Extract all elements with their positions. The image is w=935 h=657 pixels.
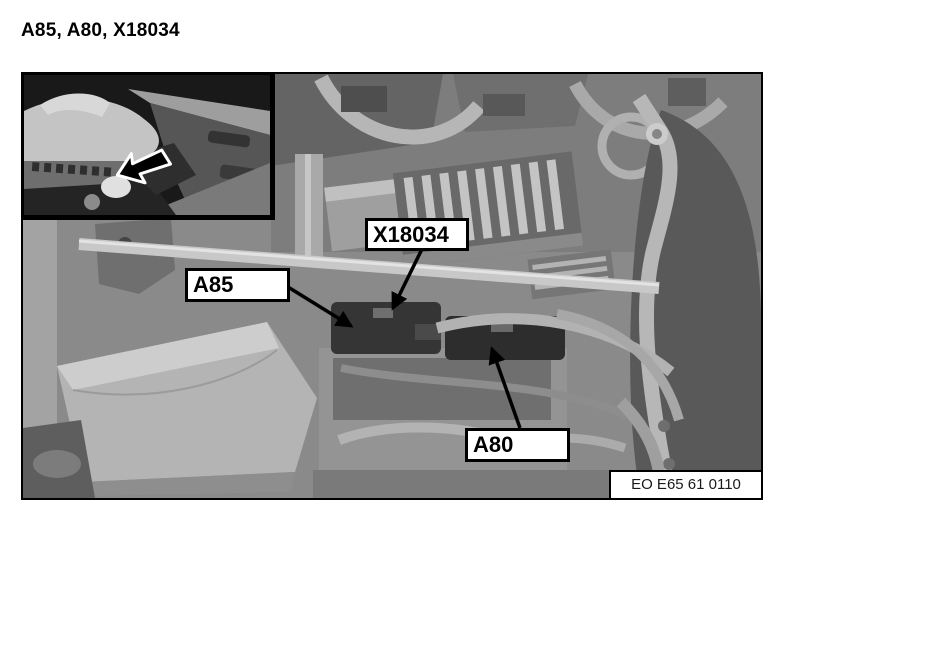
callout-label-x18034: X18034 — [365, 218, 469, 251]
callout-arrow-icon — [492, 349, 520, 428]
location-inset — [21, 72, 275, 220]
inset-photo — [24, 75, 270, 215]
callout-arrow-icon — [393, 249, 422, 308]
page-title: A85, A80, X18034 — [21, 20, 180, 42]
image-code-label: EO E65 61 0110 — [609, 470, 761, 498]
callout-label-a80: A80 — [465, 428, 570, 462]
callout-arrow-icon — [288, 287, 351, 326]
page: A85, A80, X18034 — [0, 0, 935, 657]
callout-label-a85: A85 — [185, 268, 290, 302]
inset-shapes — [24, 75, 270, 215]
diagram-figure: X18034 A85 A80 EO E65 61 0110 — [21, 72, 763, 500]
